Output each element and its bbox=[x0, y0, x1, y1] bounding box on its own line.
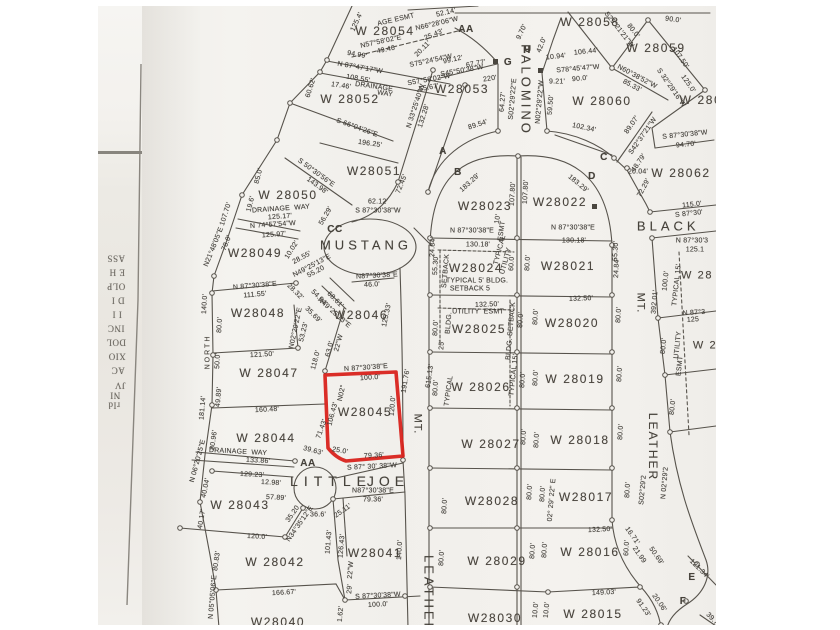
measurement-label: 107.80' bbox=[509, 182, 517, 206]
measurement-label: 80.0' bbox=[432, 380, 440, 396]
measurement-label: TYPICAL 5' BLDG. bbox=[446, 278, 508, 285]
measurement-label: 25' bbox=[438, 340, 445, 350]
corner-marker: F bbox=[680, 597, 687, 607]
street-label: MUSTANG bbox=[320, 239, 412, 252]
measurement-label: 1.62' bbox=[337, 606, 345, 623]
street-label: LEATHER bbox=[647, 413, 659, 481]
measurement-label: N87°30'38"E bbox=[352, 488, 394, 495]
measurement-label: 80.0' bbox=[617, 424, 625, 440]
measurement-label: 80.0' bbox=[532, 309, 540, 325]
margin-top bbox=[0, 0, 840, 6]
measurement-label: 79.36' bbox=[363, 497, 383, 504]
lot-label: W 28062 bbox=[651, 167, 710, 179]
measurement-label: 132.50' bbox=[569, 295, 593, 303]
measurement-label: 80.0' bbox=[441, 498, 449, 514]
lot-label: W 28018 bbox=[550, 434, 609, 446]
adjacent-page-text: XIO bbox=[108, 352, 126, 361]
lot-label: W 28016 bbox=[560, 546, 619, 558]
measurement-label: UTILITY ESMT bbox=[452, 309, 504, 316]
measurement-label: 60.0' bbox=[508, 255, 516, 271]
measurement-label: 29' bbox=[346, 584, 354, 594]
measurement-label: SETBACK 5 bbox=[450, 286, 490, 293]
corner-marker: B bbox=[454, 168, 462, 178]
corner-marker: H bbox=[523, 46, 531, 56]
measurement-label: 9.21' bbox=[549, 79, 565, 86]
adjacent-page-text: D I bbox=[111, 296, 124, 305]
street-label: LEATHER bbox=[423, 555, 436, 630]
adjacent-page-text: DOL bbox=[106, 338, 126, 347]
measurement-label: 140.0' bbox=[396, 540, 404, 560]
street-label: MT. bbox=[412, 414, 423, 435]
lot-label: W28053 bbox=[435, 83, 489, 95]
measurement-label: 125.1 bbox=[686, 247, 705, 254]
lot-label: W 28015 bbox=[563, 608, 622, 620]
lot-label: W 28026 bbox=[451, 381, 510, 393]
lot-label: W 28060 bbox=[572, 95, 631, 107]
measurement-label: 121.50' bbox=[250, 351, 274, 359]
corner-marker: C bbox=[600, 153, 608, 163]
adjacent-page-text: I I bbox=[112, 310, 122, 319]
lot-label: W 28054 bbox=[355, 25, 414, 37]
lot-label: W28025 bbox=[452, 323, 506, 335]
measurement-label: 36.6' bbox=[310, 512, 326, 519]
measurement-label: 125 bbox=[687, 316, 700, 324]
measurement-label: 79.36' bbox=[364, 452, 384, 460]
corner-marker: E bbox=[688, 573, 695, 583]
lot-label: W28030 bbox=[468, 612, 522, 624]
corner-marker: AA bbox=[300, 459, 315, 469]
lot-label: W28051 bbox=[347, 165, 401, 177]
measurement-label: 90.0' bbox=[572, 75, 589, 83]
adjacent-page-text: rId bbox=[108, 401, 120, 410]
measurement-label: 132.50' bbox=[588, 526, 612, 534]
plat-map-scan: W 28054W 28052W28053W 28058W 28059W 2806… bbox=[0, 0, 840, 630]
measurement-label: 24.84' bbox=[613, 258, 621, 278]
adjacent-page-text: JV bbox=[114, 381, 125, 390]
adjacent-page-text: ASS bbox=[107, 254, 125, 263]
measurement-label: 80.0' bbox=[616, 366, 624, 382]
measurement-label: 50.0' bbox=[214, 353, 222, 369]
adjacent-page-text: NI bbox=[110, 391, 121, 400]
adjacent-page-text: OLP bbox=[107, 282, 126, 291]
adjacent-page-text: INC bbox=[108, 324, 125, 333]
corner-marker: D bbox=[588, 172, 596, 182]
lot-label: W 28052 bbox=[320, 93, 379, 105]
measurement-label: 80.0' bbox=[615, 307, 623, 323]
measurement-label: 80.0' bbox=[438, 550, 446, 566]
measurement-label: 80.0' bbox=[624, 482, 632, 498]
measurement-label: 80.0' bbox=[520, 429, 528, 445]
lot-label: W 28027 bbox=[461, 438, 520, 450]
measurement-label: 80.0' bbox=[541, 542, 549, 558]
measurement-label: 100.0' bbox=[368, 601, 388, 609]
measurement-label: 10.0' bbox=[532, 602, 540, 619]
measurement-label: 133.86' bbox=[246, 457, 270, 465]
measurement-label: 20.04' bbox=[628, 169, 648, 176]
measurement-label: 80.0' bbox=[539, 486, 547, 502]
measurement-label: 160.48' bbox=[255, 406, 279, 414]
lot-label: W28021 bbox=[541, 260, 595, 272]
lot-label: W28045 bbox=[338, 406, 392, 418]
lot-label: W 28042 bbox=[245, 556, 304, 568]
measurement-label: 100.0' bbox=[360, 374, 381, 382]
street-label: PALOMINO bbox=[520, 44, 533, 136]
adjacent-page-text: AC bbox=[111, 366, 125, 375]
measurement-label: 130.18' bbox=[466, 242, 490, 249]
lot-label: W28023 bbox=[458, 200, 512, 212]
lot-label: W 28019 bbox=[545, 373, 604, 385]
measurement-label: 80.0' bbox=[529, 543, 537, 559]
corner-marker: G bbox=[504, 58, 512, 68]
corner-marker: A bbox=[439, 147, 447, 157]
lot-label: W 28029 bbox=[467, 555, 526, 567]
street-label: JOE bbox=[367, 474, 409, 488]
measurement-label: S 87°30'38"W bbox=[355, 208, 401, 215]
lot-label: W 28047 bbox=[239, 367, 298, 379]
lot-label: W28022 bbox=[533, 196, 587, 208]
measurement-label: 149.03' bbox=[592, 589, 616, 597]
measurement-label: 130.18' bbox=[562, 238, 586, 245]
measurement-label: 129.23' bbox=[240, 471, 264, 479]
corner-marker: AA bbox=[458, 25, 473, 35]
lot-label: W28028 bbox=[465, 495, 519, 507]
measurement-label: 107.80' bbox=[522, 180, 530, 204]
measurement-label: 80.0' bbox=[532, 370, 540, 386]
lot-label: W 28044 bbox=[236, 432, 295, 444]
lot-label: W28020 bbox=[545, 317, 599, 329]
measurement-label: 55.30' bbox=[432, 255, 440, 275]
measurement-label: 166.67' bbox=[272, 589, 296, 597]
measurement-label: 80.0' bbox=[517, 312, 525, 328]
corner-marker: CC bbox=[327, 225, 342, 235]
measurement-label: 10.0' bbox=[543, 602, 551, 619]
street-label: LITTLE bbox=[290, 474, 372, 488]
lot-label: W28041 bbox=[348, 547, 402, 559]
margin-right bbox=[716, 0, 840, 630]
margin-bottom bbox=[0, 625, 840, 630]
lot-label: W 28 bbox=[681, 271, 713, 282]
measurement-label: 80.0' bbox=[432, 320, 440, 336]
measurement-label: 80.0' bbox=[216, 317, 224, 333]
lot-label: W 28043 bbox=[210, 499, 269, 511]
measurement-label: 120.0' bbox=[247, 533, 267, 541]
measurement-label: 12.98' bbox=[261, 479, 281, 487]
measurement-label: 80.0' bbox=[526, 484, 534, 500]
measurement-label: 62.12' bbox=[368, 199, 388, 206]
margin-left bbox=[0, 0, 98, 630]
adjacent-page-text: E H bbox=[109, 268, 125, 277]
street-label: NORTH bbox=[205, 335, 212, 370]
measurement-label: N 87°30'38"E bbox=[450, 228, 494, 235]
measurement-label: 60.0' bbox=[623, 540, 631, 556]
measurement-label: 80.0' bbox=[533, 432, 541, 448]
lot-label: W 28050 bbox=[258, 189, 317, 201]
lot-label: W28048 bbox=[231, 307, 285, 319]
lot-label: W28049 bbox=[228, 247, 282, 259]
measurement-label: 80.0' bbox=[519, 372, 527, 388]
measurement-label: 46.0' bbox=[364, 281, 380, 289]
measurement-label: 57.89' bbox=[266, 494, 286, 502]
measurement-label: N 87°30'38"E bbox=[551, 225, 595, 232]
street-label: MT. bbox=[635, 293, 646, 314]
measurement-label: 80.0' bbox=[524, 255, 532, 271]
lot-label: W28017 bbox=[559, 491, 613, 503]
page-edge-line bbox=[127, 64, 141, 605]
lot-label: W 2 bbox=[693, 341, 717, 352]
measurement-label: N 87°30'3 bbox=[676, 238, 708, 245]
measurement-label: 140.0' bbox=[201, 294, 209, 314]
